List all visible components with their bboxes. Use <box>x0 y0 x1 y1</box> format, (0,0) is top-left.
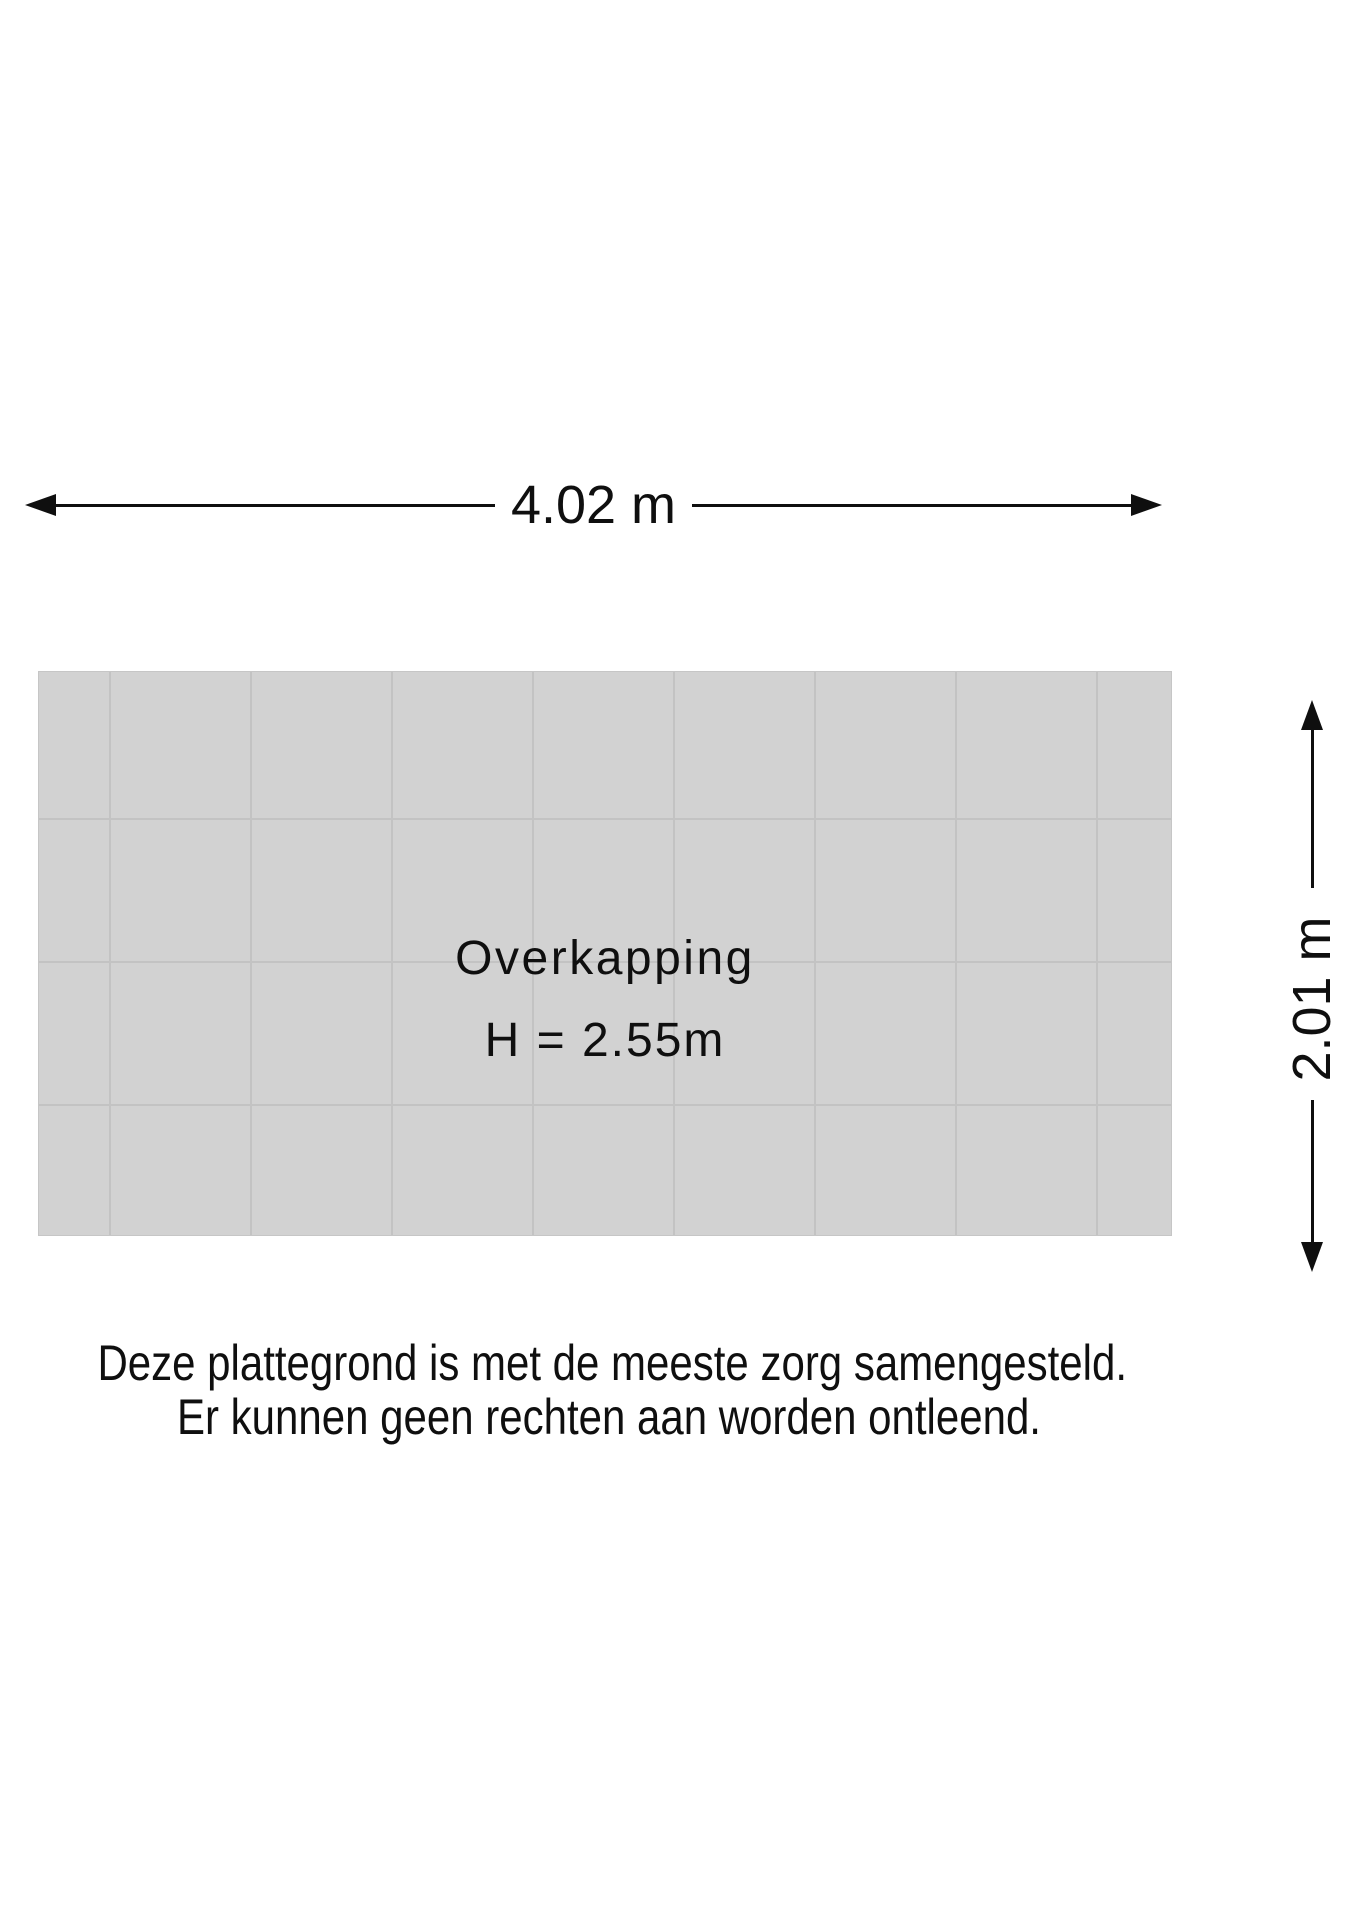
dimension-line-bottom-segment <box>1311 1100 1314 1244</box>
disclaimer-line-2: Er kunnen geen rechten aan worden ontlee… <box>97 1390 1120 1444</box>
arrowhead-left-icon <box>25 494 56 516</box>
width-dimension: 4.02 m <box>25 485 1162 525</box>
dimension-line-top-segment <box>1311 728 1314 888</box>
room-labels: Overkapping H = 2.55m <box>39 718 1171 1281</box>
width-dimension-label: 4.02 m <box>511 478 676 532</box>
dimension-line-left-segment <box>56 504 495 507</box>
height-dimension: 2.01 m <box>1292 700 1332 1272</box>
room-name-label: Overkapping <box>455 934 755 984</box>
disclaimer-line-1: Deze plattegrond is met de meeste zorg s… <box>97 1336 1120 1390</box>
height-dimension-label: 2.01 m <box>1285 916 1339 1081</box>
arrowhead-right-icon <box>1131 494 1162 516</box>
floorplan-canvas: 4.02 m Overkapping H = 2.55m 2.01 m Deze… <box>0 0 1358 1920</box>
dimension-line-right-segment <box>692 504 1131 507</box>
arrowhead-down-icon <box>1301 1242 1323 1272</box>
arrowhead-up-icon <box>1301 700 1323 730</box>
room-height-label: H = 2.55m <box>485 1016 726 1066</box>
disclaimer: Deze plattegrond is met de meeste zorg s… <box>97 1336 1120 1444</box>
room-overkapping: Overkapping H = 2.55m <box>38 671 1172 1236</box>
